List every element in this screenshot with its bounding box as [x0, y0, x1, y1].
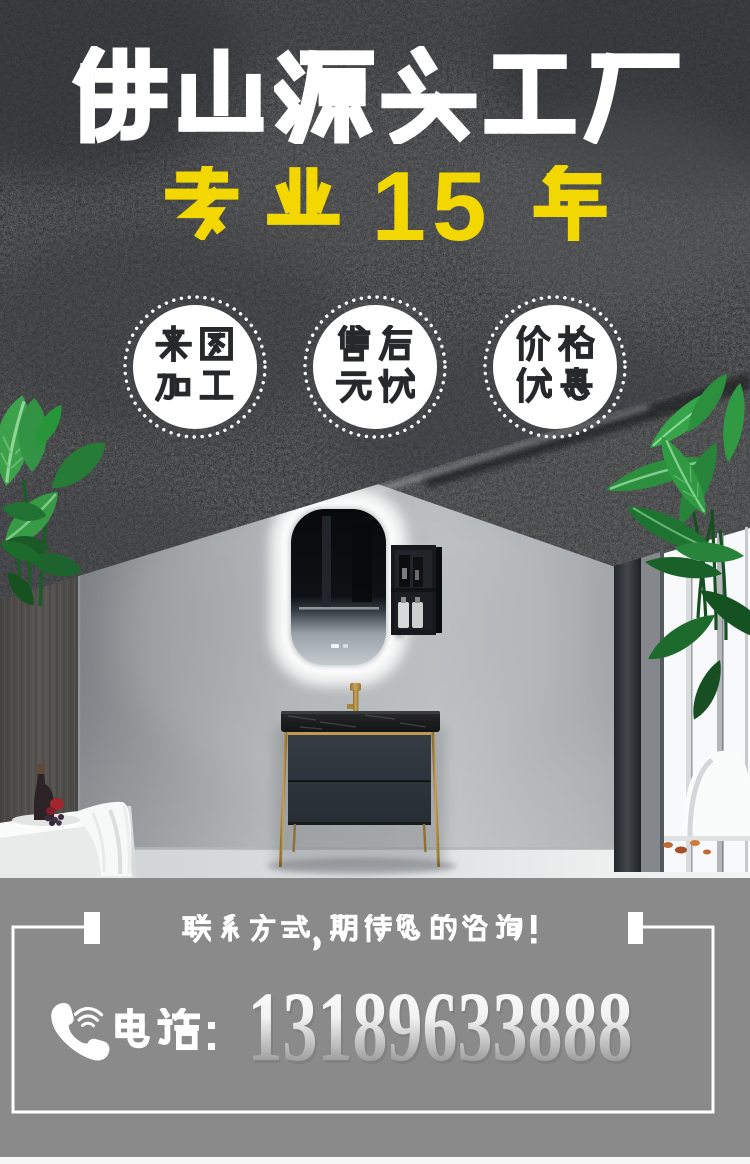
svg-text:13189633888: 13189633888: [248, 971, 633, 1082]
svg-text:15: 15: [371, 151, 492, 261]
